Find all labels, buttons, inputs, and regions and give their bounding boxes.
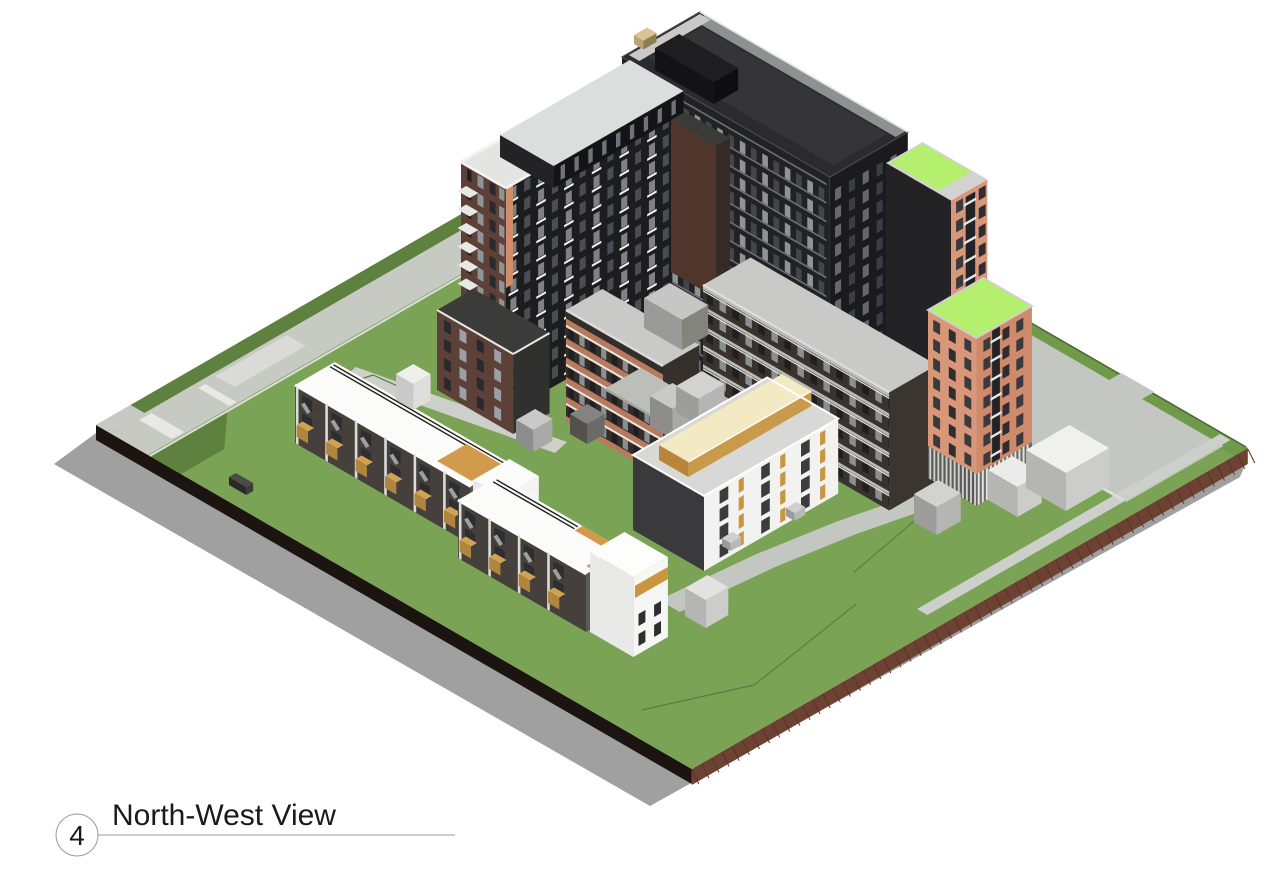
svg-text:4: 4 <box>69 820 85 851</box>
svg-text:North-West View: North-West View <box>112 799 336 832</box>
